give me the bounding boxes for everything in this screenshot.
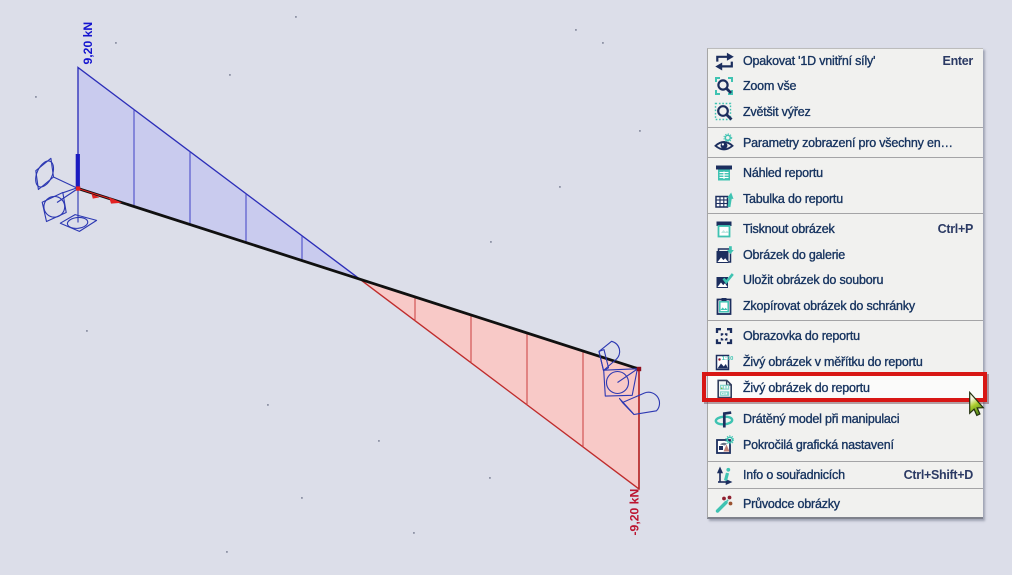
svg-text:9,20 kN: 9,20 kN [81,22,95,65]
svg-text:-9,20 kN: -9,20 kN [628,489,642,536]
svg-text:1:10: 1:10 [722,356,734,362]
